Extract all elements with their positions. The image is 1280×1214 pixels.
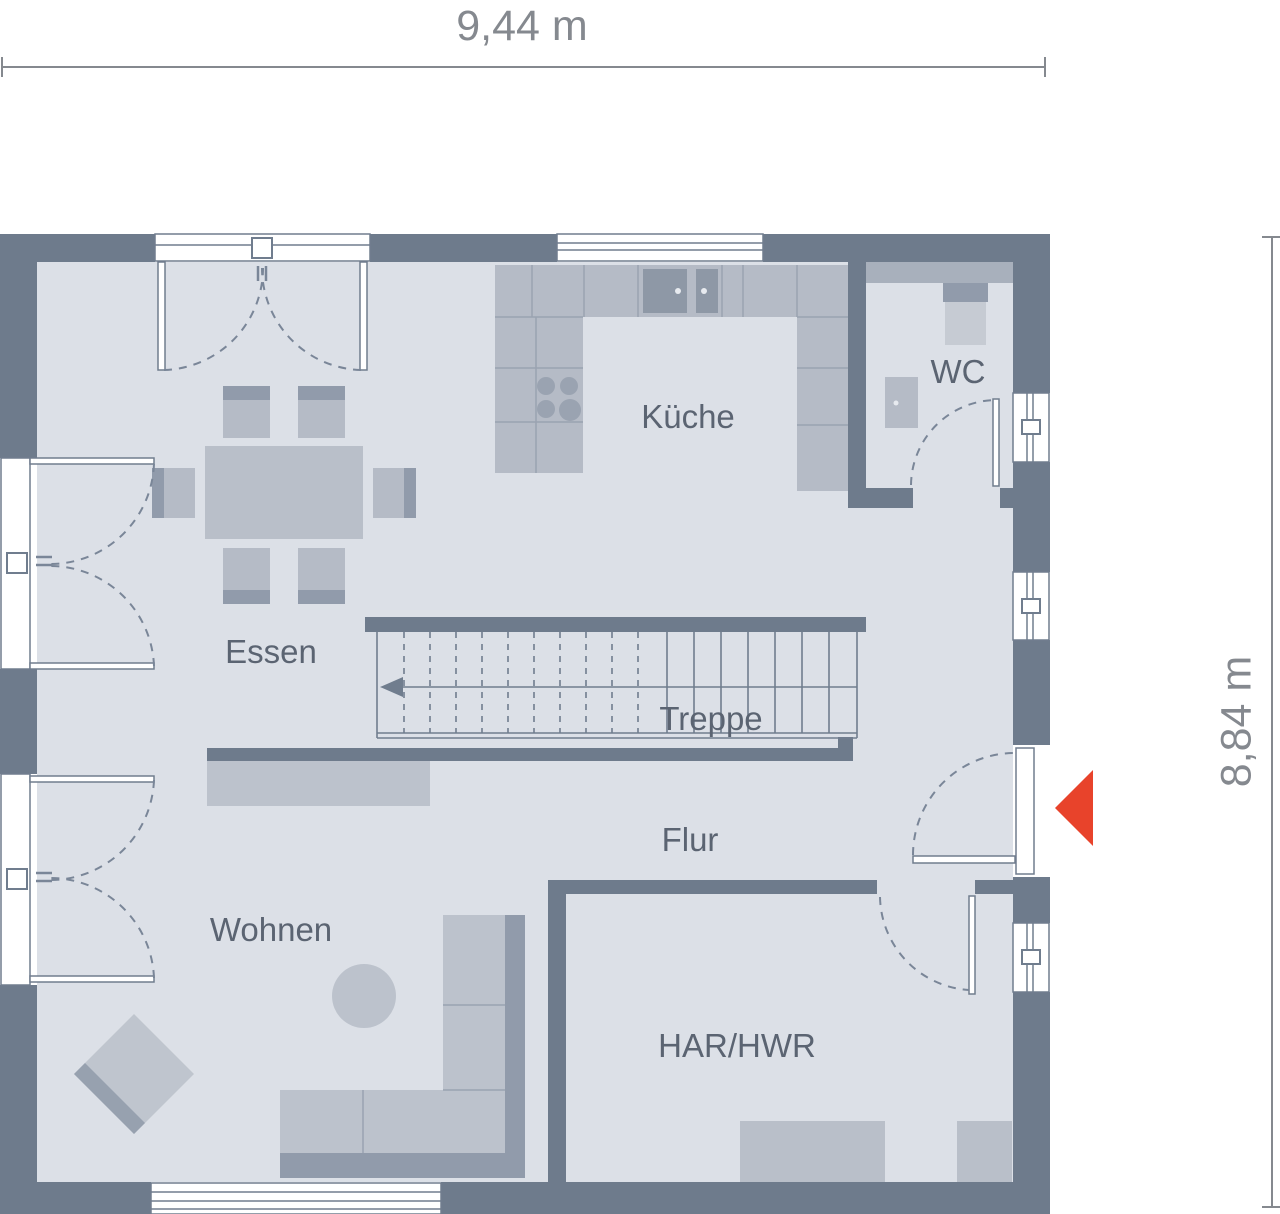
wall-har-top (975, 880, 1013, 894)
wall-wc-bottom (1000, 488, 1013, 508)
room-label-flur: Flur (590, 821, 790, 859)
kitchen-counter-left (495, 317, 583, 473)
french-door-top (155, 233, 370, 262)
dimension-height-label: 8,84 m (1213, 602, 1262, 842)
chair-backrest (223, 590, 270, 604)
sideboard (207, 761, 430, 806)
wall-right (1013, 234, 1050, 393)
wall-left (0, 669, 37, 774)
kitchen-counter-right (797, 317, 848, 491)
entrance-door-opening (1013, 745, 1050, 877)
french-door-left-lower (0, 774, 30, 985)
dining-chair (223, 548, 270, 604)
wall-bottom (0, 1182, 151, 1214)
appliance-dryer (957, 1121, 1012, 1182)
sofa-backrest (505, 915, 525, 1178)
room-label-har: HAR/HWR (607, 1027, 867, 1065)
chair-backrest (404, 468, 416, 518)
coffee-table (332, 964, 396, 1028)
wc-counter-band (866, 262, 1013, 283)
appliance-washer (740, 1121, 885, 1182)
dining-chair (298, 548, 345, 604)
entrance-arrow-icon (1055, 770, 1093, 846)
kitchen-sink (643, 269, 687, 313)
dining-chair (223, 386, 270, 438)
wall-right (1013, 992, 1050, 1214)
window-bottom (151, 1182, 441, 1214)
wall-bottom (441, 1182, 1050, 1214)
french-door-left-upper (0, 458, 30, 669)
room-label-wohnen: Wohnen (171, 911, 371, 949)
wall-wc-left (848, 262, 866, 508)
room-label-wc: WC (908, 353, 1008, 391)
chair-backrest (223, 386, 270, 400)
wall-stairs-top (365, 617, 866, 632)
dining-table (205, 446, 363, 539)
wall-right (1013, 877, 1050, 923)
wall-har-top (548, 880, 877, 894)
dining-chair (373, 468, 416, 518)
dining-chair (152, 468, 195, 518)
chair-backrest (298, 590, 345, 604)
wall-left (0, 985, 37, 1214)
window-wc (1013, 393, 1050, 462)
kitchen-sink-small (696, 269, 718, 313)
window-kitchen (557, 233, 763, 262)
room-label-essen: Essen (171, 633, 371, 671)
sofa-seats (280, 1090, 443, 1153)
wall-right (1013, 640, 1050, 745)
wall-wc-bottom (848, 488, 913, 508)
wall-top (763, 234, 1050, 262)
wall-under-stairs (207, 748, 843, 761)
dimension-width-label: 9,44 m (402, 2, 642, 51)
wall-right (1013, 462, 1050, 572)
wall-left (0, 234, 37, 458)
dining-chair (298, 386, 345, 438)
wall-under-stairs-step (838, 737, 853, 761)
floor-plan: 9,44 m 8,84 m Essen Küche WC Treppe Flur… (0, 0, 1280, 1214)
wall-har-left (548, 880, 566, 1182)
sofa-seats (443, 915, 505, 1153)
window-har (1013, 923, 1050, 992)
toilet-bowl (945, 302, 986, 345)
chair-backrest (298, 386, 345, 400)
toilet-cistern (943, 283, 988, 302)
wall-top (370, 234, 557, 262)
chair-backrest (152, 468, 164, 518)
room-label-kueche: Küche (588, 398, 788, 436)
room-label-treppe: Treppe (611, 700, 811, 738)
window-stair (1013, 572, 1050, 640)
sofa-backrest (280, 1153, 505, 1178)
